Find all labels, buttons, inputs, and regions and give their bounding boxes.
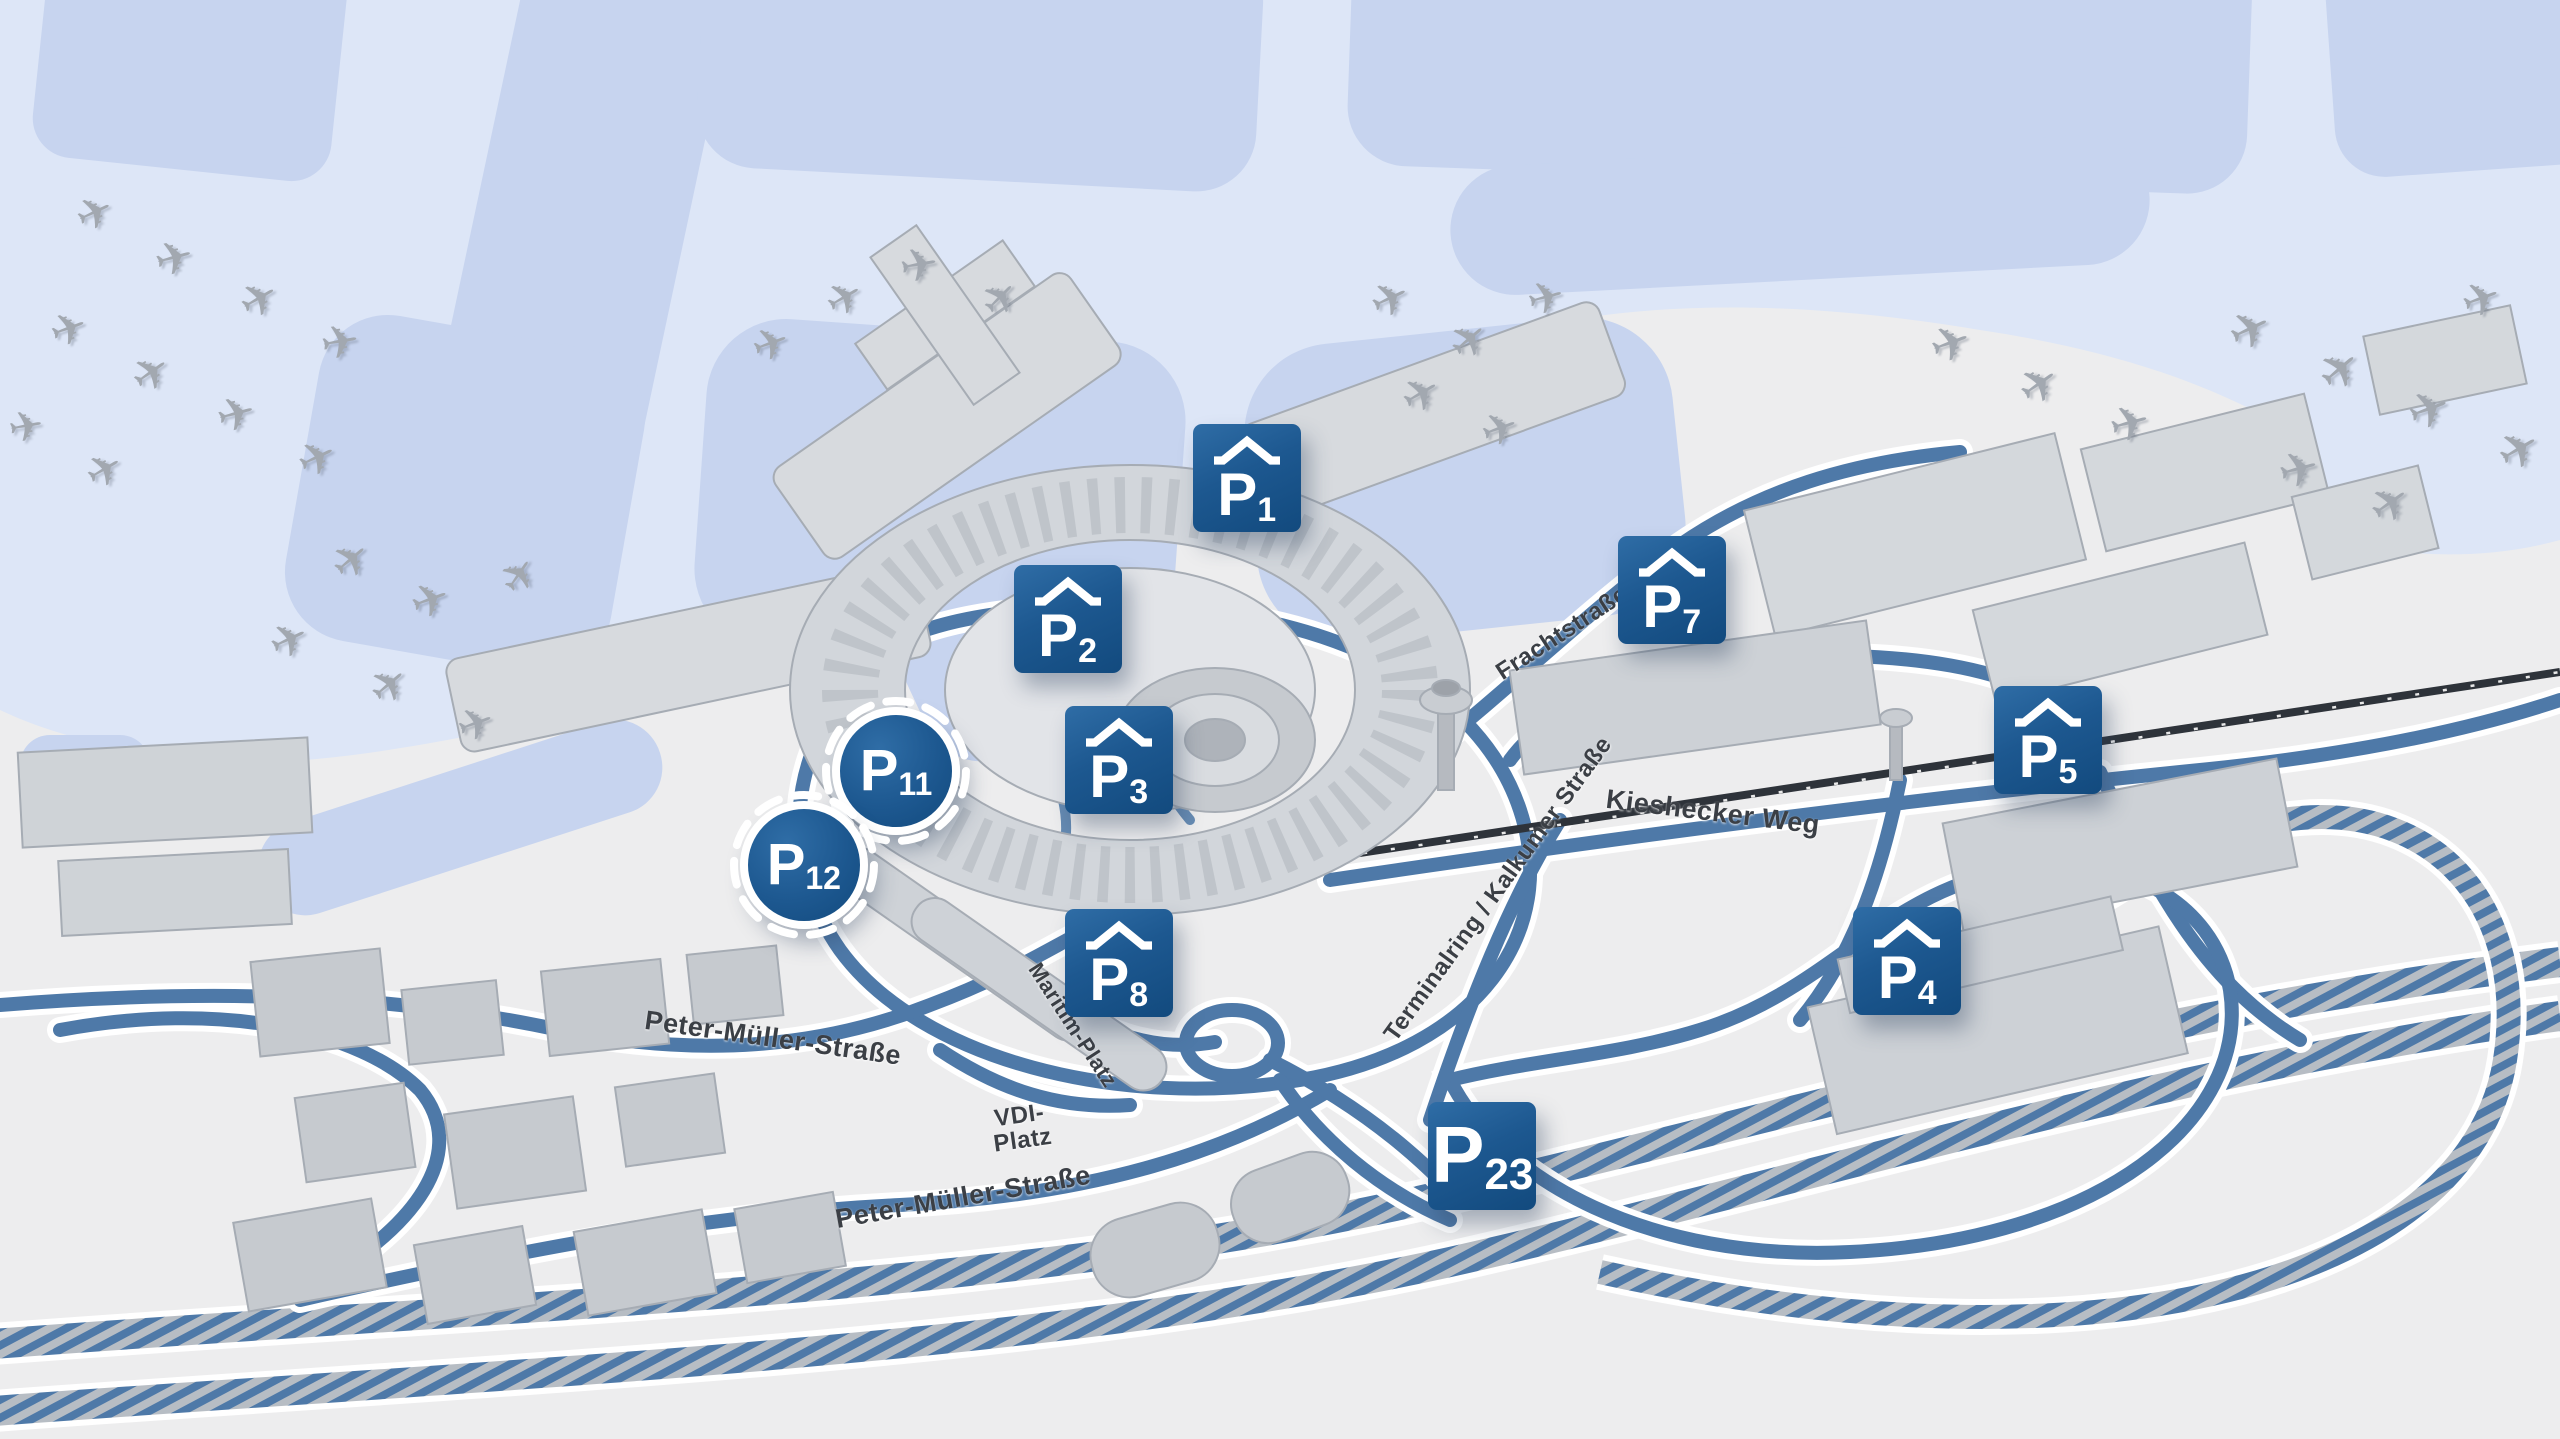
airplane-icon: ✈ <box>896 239 942 291</box>
parking-marker-label: P12 <box>767 836 841 894</box>
street-label: VDI- Platz <box>989 1099 1054 1157</box>
parking-marker-p23[interactable]: P23 <box>1428 1102 1536 1210</box>
parking-marker-p8[interactable]: P8 <box>1065 909 1173 1017</box>
parking-marker-label: P1 <box>1217 465 1276 527</box>
west-buildings <box>18 737 313 935</box>
airplane-icon: ✈ <box>317 316 363 368</box>
map-canvas <box>0 0 2560 1439</box>
parking-marker-label: P11 <box>860 742 933 800</box>
parking-marker-p11[interactable]: P11 <box>832 707 960 835</box>
parking-marker-label: P7 <box>1642 577 1701 639</box>
parking-marker-p5[interactable]: P5 <box>1994 686 2102 794</box>
parking-marker-p7[interactable]: P7 <box>1618 536 1726 644</box>
parking-marker-label: P8 <box>1089 950 1148 1012</box>
parking-marker-label: P4 <box>1878 948 1937 1010</box>
parking-marker-label: P5 <box>2019 727 2078 789</box>
parking-marker-p3[interactable]: P3 <box>1065 706 1173 814</box>
parking-marker-p2[interactable]: P2 <box>1014 565 1122 673</box>
parking-marker-label: P23 <box>1431 1115 1533 1197</box>
terminal-crescent <box>790 465 1470 915</box>
parking-marker-p1[interactable]: P1 <box>1193 424 1301 532</box>
airplane-icon: ✈ <box>5 404 47 451</box>
parking-marker-p4[interactable]: P4 <box>1853 907 1961 1015</box>
parking-marker-label: P2 <box>1038 606 1097 668</box>
parking-marker-p12[interactable]: P12 <box>740 801 868 929</box>
airport-map: ✈✈✈✈✈✈✈✈✈✈✈✈✈✈✈✈✈✈✈✈✈✈✈✈✈✈✈✈✈✈✈✈✈✈✈ Pete… <box>0 0 2560 1439</box>
parking-marker-label: P3 <box>1089 747 1148 809</box>
